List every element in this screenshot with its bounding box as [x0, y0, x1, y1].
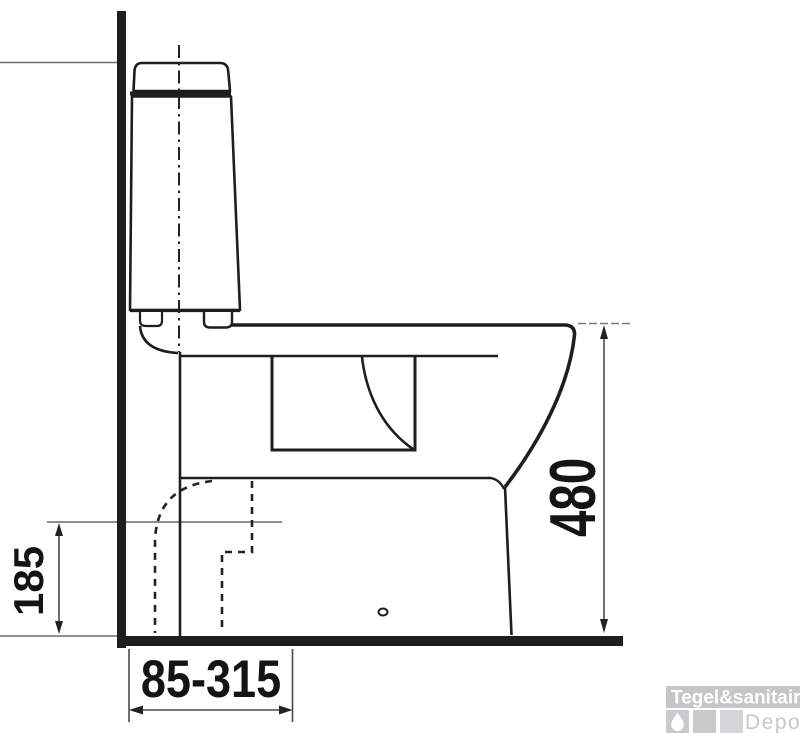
rim-height-dimension-label: 480 [537, 458, 610, 537]
brand-name: Tegel&sanitair [671, 688, 800, 709]
arrow-up-icon [600, 325, 608, 339]
brand-subname: Depot [745, 711, 800, 733]
rim-top-and-bowl-curve [232, 325, 575, 487]
wall-section [117, 11, 126, 648]
fixing-hole [379, 609, 388, 616]
cistern-lid [134, 63, 231, 91]
toilet-technical-drawing: 185 480 85-315 Tegel&sanitair Depot [0, 0, 800, 733]
trap-dashed-outline [155, 481, 212, 633]
brand-logo: Tegel&sanitair Depot [666, 686, 800, 733]
outlet-range-dimension-label: 85-315 [141, 650, 281, 709]
logo-square-2 [693, 710, 716, 733]
logo-square-3 [720, 710, 743, 733]
cistern-body [130, 97, 240, 311]
bowl-back-corner-arc [140, 326, 178, 353]
trap-height-dimension-label: 185 [5, 546, 52, 616]
cistern-left-tab [140, 312, 162, 326]
arrow-up-icon [55, 523, 63, 536]
foot-front-edge [505, 487, 512, 635]
arrow-down-icon [600, 619, 608, 633]
cistern-right-tab [204, 312, 232, 328]
outlet-pipe-dashed-outline [222, 481, 252, 633]
bowl-interior-curve [362, 357, 413, 449]
arrow-down-icon [55, 621, 63, 634]
bowl-foot-transition-curve [491, 478, 504, 489]
drawing-canvas: 185 480 85-315 Tegel&sanitair Depot [0, 0, 800, 733]
floor-section [117, 636, 623, 646]
